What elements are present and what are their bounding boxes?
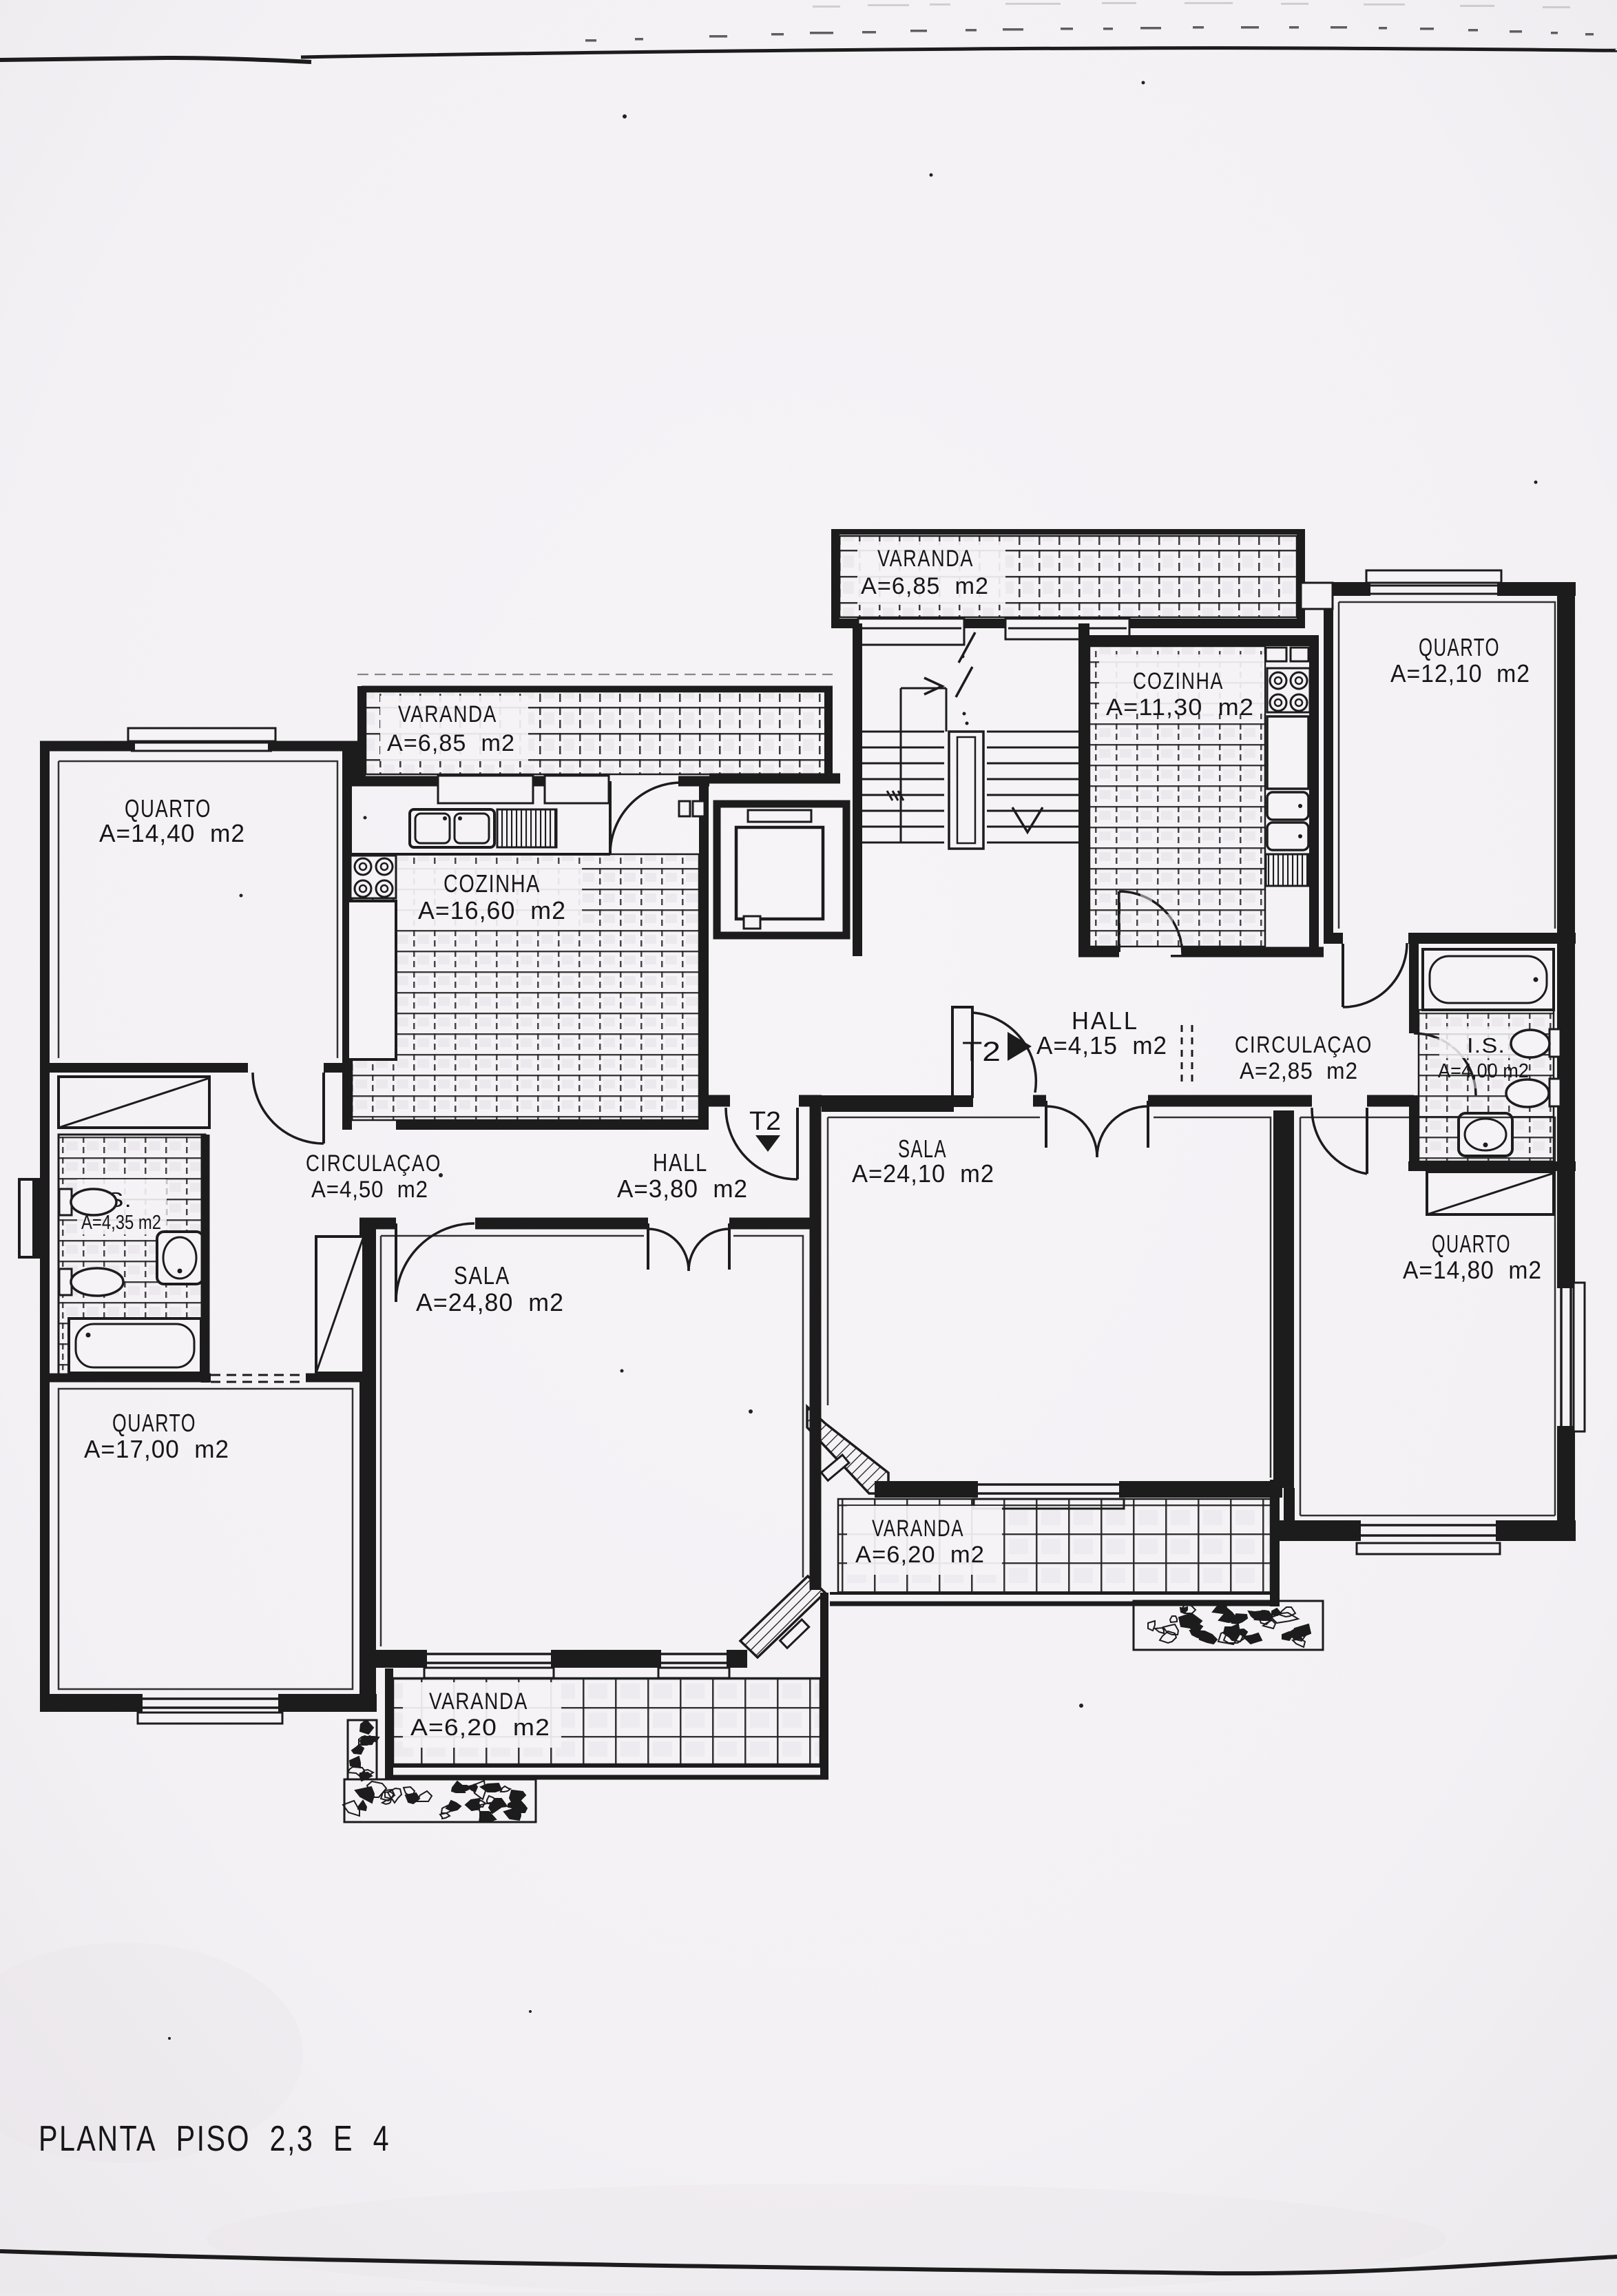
- svg-text:A=12,10 m2: A=12,10 m2: [1390, 659, 1530, 687]
- svg-text:A=24,10 m2: A=24,10 m2: [852, 1159, 994, 1188]
- svg-text:T2: T2: [962, 1037, 1001, 1067]
- svg-text:A=6,85 m2: A=6,85 m2: [861, 573, 989, 599]
- svg-text:QUARTO: QUARTO: [112, 1409, 196, 1437]
- svg-text:VARANDA: VARANDA: [872, 1516, 964, 1542]
- svg-text:QUARTO: QUARTO: [1432, 1230, 1511, 1258]
- svg-text:I.S.: I.S.: [1467, 1033, 1505, 1057]
- svg-text:A=4,00 m2: A=4,00 m2: [1438, 1060, 1529, 1082]
- svg-text:HALL: HALL: [653, 1148, 708, 1177]
- svg-text:QUARTO: QUARTO: [125, 794, 211, 823]
- svg-text:PLANTA PISO 2,3 E 4: PLANTA PISO 2,3 E 4: [39, 2119, 390, 2159]
- svg-text:A=2,85 m2: A=2,85 m2: [1240, 1058, 1358, 1084]
- svg-text:A=4,50 m2: A=4,50 m2: [311, 1177, 428, 1203]
- svg-text:CIRCULAÇAO: CIRCULAÇAO: [1235, 1032, 1373, 1058]
- svg-text:SALA: SALA: [898, 1135, 947, 1163]
- svg-text:QUARTO: QUARTO: [1419, 633, 1500, 661]
- svg-text:VARANDA: VARANDA: [398, 701, 497, 727]
- svg-text:A=3,80 m2: A=3,80 m2: [617, 1175, 748, 1203]
- svg-text:A=6,85 m2: A=6,85 m2: [387, 730, 515, 756]
- svg-text:A=17,00 m2: A=17,00 m2: [84, 1435, 229, 1463]
- svg-text:COZINHA: COZINHA: [1133, 668, 1224, 694]
- svg-text:VARANDA: VARANDA: [429, 1688, 528, 1715]
- svg-text:A=6,20 m2: A=6,20 m2: [855, 1542, 985, 1568]
- svg-text:CIRCULAÇAO: CIRCULAÇAO: [306, 1150, 441, 1177]
- svg-text:COZINHA: COZINHA: [444, 869, 541, 898]
- svg-text:A=14,40 m2: A=14,40 m2: [99, 819, 245, 847]
- svg-text:A=24,80 m2: A=24,80 m2: [416, 1288, 564, 1316]
- svg-text:A=14,80 m2: A=14,80 m2: [1403, 1256, 1542, 1284]
- svg-text:A=4,15 m2: A=4,15 m2: [1036, 1031, 1167, 1059]
- svg-text:SALA: SALA: [454, 1261, 510, 1290]
- svg-text:A=6,20 m2: A=6,20 m2: [410, 1715, 550, 1741]
- svg-text:T2: T2: [749, 1107, 781, 1136]
- svg-text:A=11,30 m2: A=11,30 m2: [1106, 694, 1254, 721]
- svg-text:HALL: HALL: [1072, 1006, 1139, 1035]
- svg-text:A=16,60 m2: A=16,60 m2: [418, 896, 566, 924]
- svg-text:VARANDA: VARANDA: [877, 546, 974, 572]
